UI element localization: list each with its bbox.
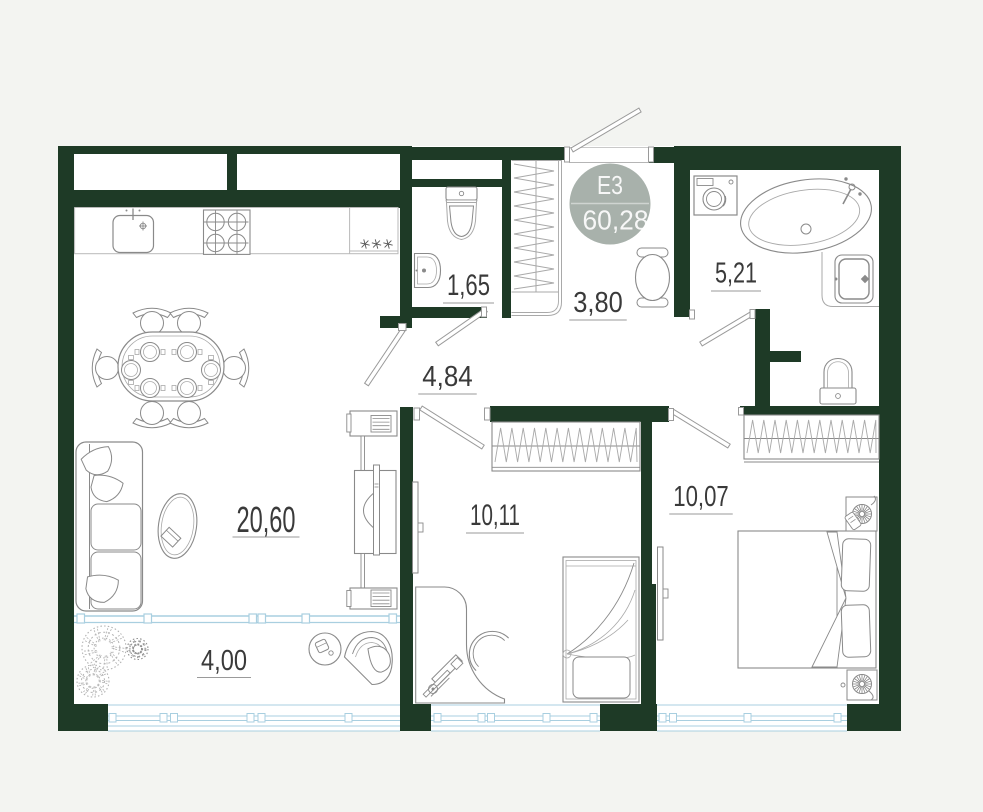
svg-text:4,84: 4,84	[422, 361, 473, 393]
svg-text:3,80: 3,80	[573, 287, 623, 319]
svg-text:10,11: 10,11	[470, 499, 520, 532]
svg-text:10,07: 10,07	[673, 481, 729, 513]
svg-text:60,28: 60,28	[583, 205, 649, 236]
svg-text:E3: E3	[597, 170, 623, 200]
svg-text:20,60: 20,60	[237, 499, 296, 540]
svg-text:1,65: 1,65	[447, 269, 490, 302]
svg-text:4,00: 4,00	[201, 645, 247, 677]
svg-text:5,21: 5,21	[715, 258, 757, 290]
